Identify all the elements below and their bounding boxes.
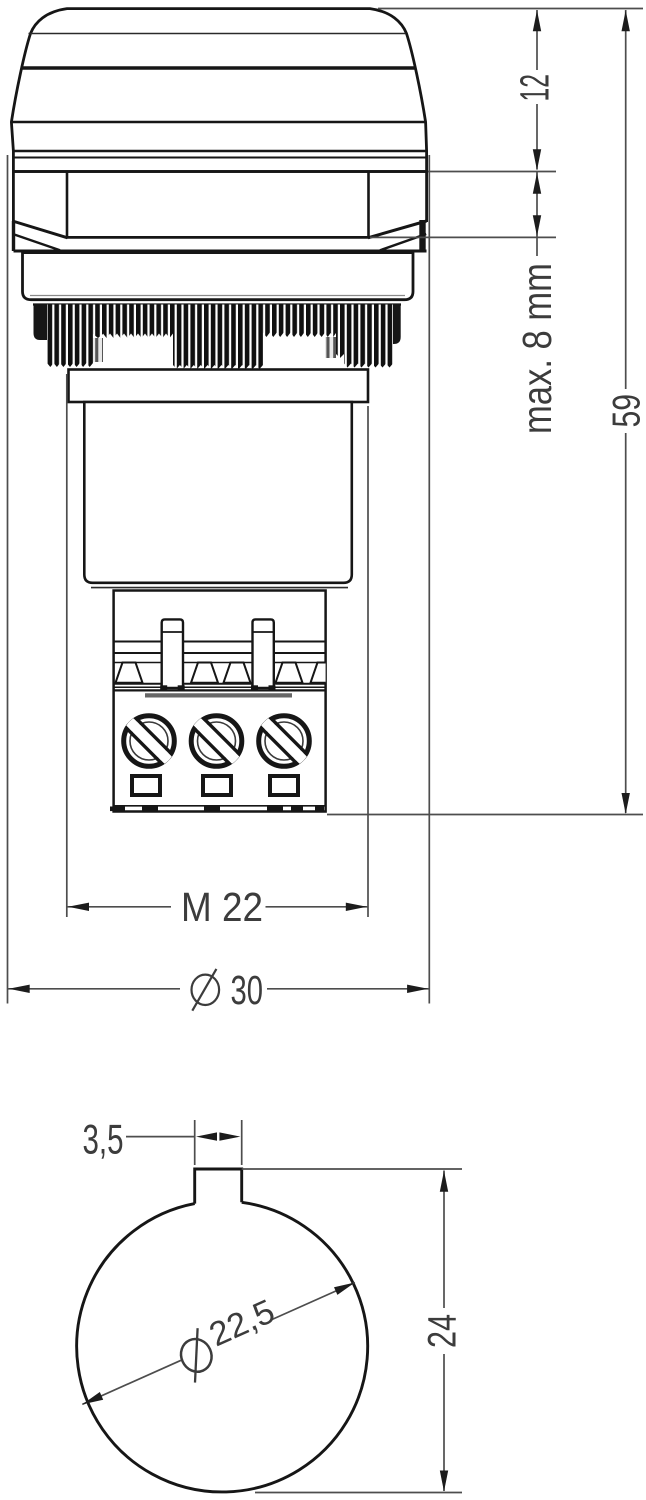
svg-text:22,5: 22,5 — [204, 1292, 281, 1354]
svg-text:30: 30 — [231, 967, 264, 1013]
svg-text:max. 8 mm: max. 8 mm — [514, 263, 560, 434]
svg-text:24: 24 — [421, 1314, 465, 1348]
svg-text:M 22: M 22 — [181, 884, 263, 930]
svg-text:12: 12 — [512, 74, 558, 102]
svg-text:3,5: 3,5 — [83, 1116, 124, 1163]
svg-text:59: 59 — [606, 394, 646, 428]
